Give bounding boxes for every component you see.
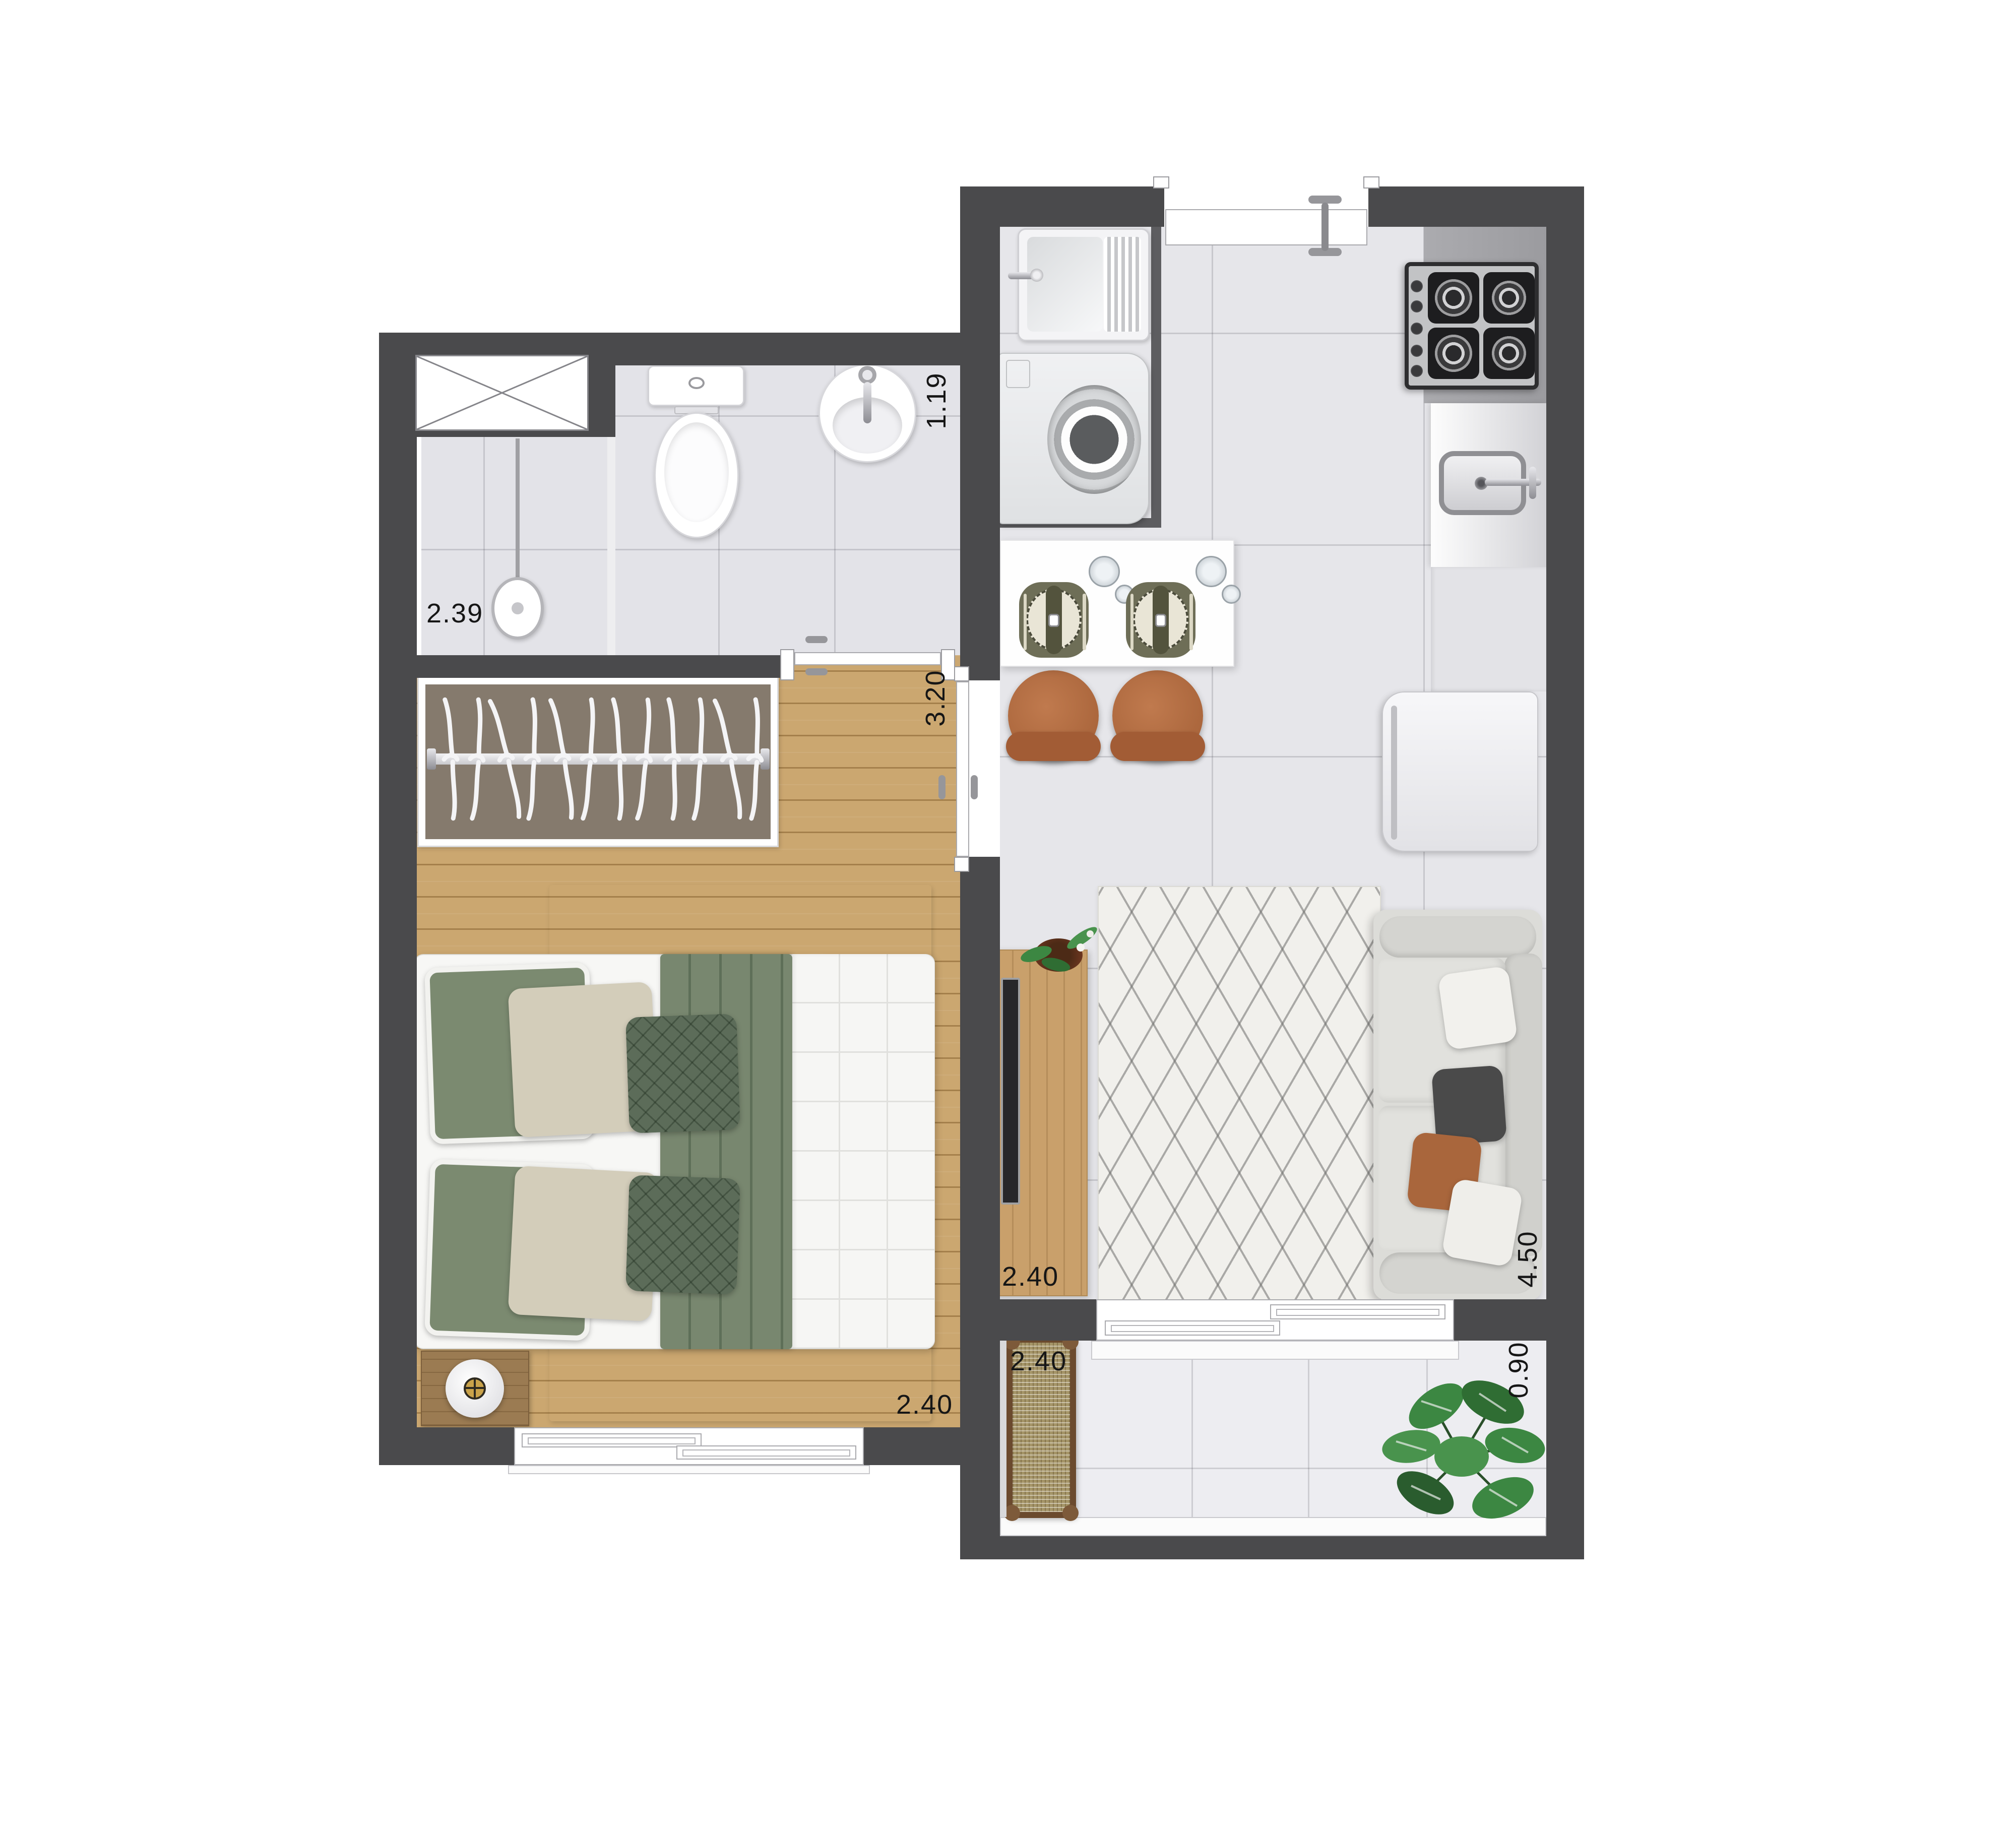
lamp-center-cross xyxy=(474,1378,476,1399)
sideboard-plant-flower xyxy=(1087,930,1094,937)
entrance-door-handle-post xyxy=(1321,203,1329,251)
knife-icon xyxy=(1083,594,1086,650)
wall-balcony-bottom xyxy=(1000,1536,1546,1559)
shower-partition xyxy=(607,437,615,655)
refrigerator xyxy=(1382,691,1538,852)
kitchen-cabinet xyxy=(1431,567,1546,691)
bed-pillow-darkgreen xyxy=(625,1175,740,1295)
sofa-pillow-white xyxy=(1437,966,1518,1050)
wall-top-kitchen-left xyxy=(960,186,1164,227)
balcony-left-edge xyxy=(1000,1341,1006,1517)
dimension-label-living-length: 4.50 xyxy=(1513,1204,1543,1314)
drinking-glass-small xyxy=(1222,585,1241,604)
knife-icon xyxy=(1189,594,1193,650)
window-glass-line xyxy=(1111,1325,1274,1332)
wall-right xyxy=(1546,186,1584,1559)
grout-line xyxy=(421,549,607,550)
wall-bedroom-bottom-right xyxy=(864,1427,960,1465)
bedroom-window-sill xyxy=(508,1465,870,1474)
entrance-door-leaf xyxy=(1165,209,1367,245)
living-rug xyxy=(1098,886,1381,1305)
bedroom-door-jamb xyxy=(954,666,969,681)
utility-sink xyxy=(1018,228,1150,341)
utility-sink-washboard xyxy=(1104,237,1141,332)
dimension-label-balcony-depth: 0.90 xyxy=(1503,1314,1534,1425)
closet-hangers xyxy=(419,678,780,849)
bedroom-door-handle xyxy=(938,775,946,799)
dimension-label-bathroom: 1.19 xyxy=(921,345,952,456)
bed-duvet-white-quilted xyxy=(792,954,935,1349)
entrance-jamb xyxy=(1153,176,1169,188)
wall-under-shower xyxy=(379,655,780,678)
dining-chair-backrest xyxy=(1110,732,1205,761)
bench-knob xyxy=(1062,1505,1079,1521)
shower-hose xyxy=(516,438,520,587)
bedroom-window-panel xyxy=(522,1433,702,1447)
stove-knob xyxy=(1411,300,1423,312)
utility-shaft xyxy=(415,355,589,431)
living-window-panel xyxy=(1105,1320,1280,1336)
grout-line xyxy=(615,549,960,550)
bathroom-faucet xyxy=(863,382,871,423)
napkin-ring xyxy=(1155,614,1166,627)
fork-icon xyxy=(1130,594,1133,650)
dimension-label-living-width: 2.40 xyxy=(1002,1261,1059,1292)
dimension-label-bedroom-length: 3.20 xyxy=(920,643,951,753)
laundry-nook-wall-vertical xyxy=(1151,227,1161,528)
wall-bedroom-bottom-left xyxy=(379,1427,514,1465)
wall-left xyxy=(379,333,417,1465)
bedroom-door-jamb xyxy=(954,857,969,872)
stove-knob xyxy=(1411,345,1423,357)
bathroom-door-handle xyxy=(805,636,828,643)
stove-burner xyxy=(1483,328,1535,379)
sofa-pillow-charcoal xyxy=(1431,1065,1507,1145)
bed-pillow-darkgreen xyxy=(625,1014,740,1133)
bedroom-window-panel xyxy=(676,1445,856,1460)
bathroom-door-handle xyxy=(805,668,828,675)
window-glass-line xyxy=(1276,1309,1439,1316)
toilet-bowl-inner xyxy=(664,422,729,522)
dining-chair-backrest xyxy=(1006,732,1101,761)
napkin-ring xyxy=(1048,614,1059,627)
floor-plan-canvas: 2.39 1.19 3.20 2.40 2.40 4.50 2.40 0.90 xyxy=(0,0,2016,1832)
refrigerator-handle xyxy=(1391,706,1397,840)
tv-icon xyxy=(1001,978,1020,1205)
wall-balcony-left xyxy=(960,1341,1000,1559)
sofa-armrest-top xyxy=(1379,916,1536,958)
dimension-label-balcony-width: 2.40 xyxy=(1010,1346,1067,1377)
wall-living-left xyxy=(960,857,1000,1299)
entrance-jamb xyxy=(1363,176,1379,188)
living-window-panel xyxy=(1270,1304,1445,1319)
window-glass-line xyxy=(528,1437,696,1444)
fork-icon xyxy=(1024,594,1027,650)
wall-kitchen-left xyxy=(960,227,1000,680)
bathroom-door-jamb xyxy=(780,649,794,680)
shower-head-center xyxy=(512,602,524,614)
window-glass-line xyxy=(682,1449,850,1457)
kitchen-faucet-handle xyxy=(1529,467,1536,499)
stove-burner xyxy=(1483,272,1535,324)
utility-sink-basin xyxy=(1027,237,1103,332)
sofa-pillow-white xyxy=(1441,1178,1524,1268)
bedroom-door-handle xyxy=(971,775,978,799)
toilet-flush-button xyxy=(688,377,705,389)
dimension-label-bedroom-width: 2.40 xyxy=(896,1389,953,1420)
stove-knob xyxy=(1411,323,1423,335)
bedroom-door-leaf xyxy=(956,681,969,857)
grout-line xyxy=(483,437,485,655)
closet xyxy=(417,676,779,847)
bathroom-door-leaf xyxy=(794,652,941,665)
stove-burner xyxy=(1428,272,1479,324)
washer-drawer xyxy=(1006,360,1030,388)
washing-machine xyxy=(998,353,1149,524)
bathroom-faucet-ring xyxy=(858,366,876,384)
stove-knob xyxy=(1411,280,1423,292)
stove-knob xyxy=(1411,365,1423,377)
living-window-sill xyxy=(1091,1341,1459,1360)
grout-line xyxy=(1308,1341,1309,1517)
washer-door-icon xyxy=(1047,385,1141,494)
dimension-label-shower: 2.39 xyxy=(426,598,483,629)
stove-cooktop xyxy=(1405,262,1539,390)
utility-sink-faucet-head xyxy=(1030,269,1043,282)
shaft-x-icon xyxy=(417,356,587,429)
drinking-glass xyxy=(1195,556,1227,587)
drinking-glass xyxy=(1089,556,1120,587)
sideboard-plant-flower xyxy=(1077,943,1085,952)
wall-balcony-top-left xyxy=(960,1299,1096,1341)
grout-line xyxy=(1191,1341,1193,1517)
stove-burner xyxy=(1428,328,1479,379)
